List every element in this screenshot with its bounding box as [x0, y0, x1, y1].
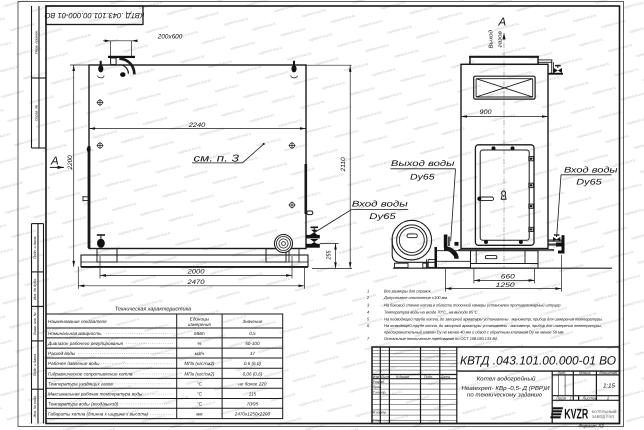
svg-text:газов: газов: [497, 31, 503, 48]
svg-text:0,6 (6,0): 0,6 (6,0): [244, 361, 262, 366]
svg-text:Остальные технические требован: Остальные технические требования по ОСТ …: [384, 336, 498, 341]
svg-text:Температура воды (вход/выход): Температура воды (вход/выход): [48, 401, 119, 406]
svg-text:2000: 2000: [186, 269, 205, 276]
svg-text:°С: °С: [197, 401, 203, 406]
svg-text:Dy65: Dy65: [410, 172, 435, 181]
svg-text:А: А: [50, 156, 59, 168]
svg-text:Вход воды: Вход воды: [352, 200, 408, 209]
svg-text:Все размеры для справок: Все размеры для справок: [384, 289, 432, 294]
svg-text:Техническая характеристика: Техническая характеристика: [115, 307, 191, 313]
svg-text:На отводящей трубе котла, до: На отводящей трубе котла, до запорной ар…: [384, 323, 602, 328]
svg-text:МПа (кгс/см2): МПа (кгс/см2): [184, 371, 214, 376]
svg-text:МВт: МВт: [194, 331, 205, 336]
svg-text:%: %: [197, 341, 201, 346]
svg-text:Вход воды: Вход воды: [564, 166, 618, 175]
svg-text:На боковой стенке котла в обла: На боковой стенке котла в области топочн…: [384, 303, 561, 308]
svg-text:Масса: Масса: [579, 371, 590, 375]
svg-text:Номинальная мощность: Номинальная мощность: [48, 331, 102, 336]
svg-text:1:15: 1:15: [603, 383, 615, 390]
svg-text:660: 660: [501, 273, 516, 280]
svg-text:Диапазон рабочего регулировани: Диапазон рабочего регулирования: [47, 341, 124, 346]
svg-text:Лист: Лист: [380, 375, 390, 379]
svg-text:Допустимое отклонение ±100 мм: Допустимое отклонение ±100 мм.: [383, 295, 448, 300]
svg-text:°С: °С: [197, 381, 203, 386]
svg-text:Лист: Лист: [555, 396, 567, 401]
svg-text:Разраб.: Разраб.: [373, 380, 385, 384]
svg-text:м3/ч: м3/ч: [195, 351, 205, 356]
svg-text:Подп. и дата: Подп. и дата: [33, 236, 37, 259]
svg-text:КВТД .043.101.00.000-01 ВО: КВТД .043.101.00.000-01 ВО: [460, 354, 616, 368]
svg-text:Дата: Дата: [440, 375, 450, 379]
svg-text:200х600: 200х600: [157, 33, 183, 40]
svg-text:50-100: 50-100: [245, 341, 260, 346]
svg-text:предохранительный клапан Dу н: предохранительный клапан Dу не менее 40 …: [384, 329, 564, 334]
svg-text:КВТД .043.101.00.000-01 ВО: КВТД .043.101.00.000-01 ВО: [45, 11, 145, 20]
svg-text:Справ. №: Справ. №: [34, 105, 38, 121]
svg-text:КОТЕЛЬНЫЙ: КОТЕЛЬНЫЙ: [592, 409, 617, 414]
svg-text:Габариты котла (длинна х ширин: Габариты котла (длинна х ширина х высота…: [48, 412, 149, 417]
svg-text:ЗАВОД РЭП: ЗАВОД РЭП: [592, 415, 615, 419]
svg-text:Н.контр.: Н.контр.: [373, 410, 387, 414]
svg-text:Подп. и дата: Подп. и дата: [33, 354, 37, 377]
svg-text:Пров.: Пров.: [373, 385, 382, 389]
svg-text:Формат А3: Формат А3: [578, 424, 604, 429]
svg-text:Выход воды: Выход воды: [391, 159, 455, 168]
svg-text:Изм: Изм: [373, 375, 380, 379]
svg-text:Выход: Выход: [488, 30, 495, 49]
svg-text:Утв.: Утв.: [373, 418, 381, 422]
svg-text:не более 220: не более 220: [238, 381, 266, 386]
svg-text:2470х1250х2200: 2470х1250х2200: [234, 412, 271, 417]
svg-text:Подп.: Подп.: [424, 375, 433, 379]
svg-text:0,5: 0,5: [249, 331, 256, 336]
svg-text:Перв. примен.: Перв. примен.: [34, 30, 38, 54]
svg-text:Инв. № подл.: Инв. № подл.: [33, 395, 37, 417]
svg-text:А: А: [498, 17, 507, 29]
svg-text:МПа (кгс/см2): МПа (кгс/см2): [184, 361, 214, 366]
svg-text:Расход воды: Расход воды: [48, 351, 76, 356]
svg-text:Максимальная рабочая температу: Максимальная рабочая температура воды: [48, 392, 143, 397]
svg-text:0,06 (0,6): 0,06 (0,6): [243, 371, 263, 376]
svg-text:На подводящей трубе котла, д: На подводящей трубе котла, до запорной а…: [384, 317, 603, 322]
svg-text:2110: 2110: [340, 157, 347, 173]
svg-text:Наименование показателя: Наименование показателя: [48, 319, 107, 324]
svg-text:мм: мм: [196, 412, 203, 417]
svg-text:°С: °С: [197, 392, 203, 397]
svg-text:KVZR: KVZR: [564, 406, 588, 422]
svg-text:2200: 2200: [67, 155, 74, 170]
svg-text:Температура уходящих газов: Температура уходящих газов: [48, 381, 113, 386]
svg-text:по техническому заданию: по техническому заданию: [467, 391, 543, 398]
svg-text:2240: 2240: [188, 122, 206, 129]
svg-text:2470: 2470: [186, 279, 205, 286]
svg-text:Масштаб: Масштаб: [599, 371, 618, 375]
svg-text:Лит.: Лит.: [557, 371, 567, 375]
svg-text:17: 17: [250, 351, 256, 356]
svg-text:70/95: 70/95: [247, 401, 259, 406]
svg-text:1: 1: [570, 396, 572, 401]
svg-text:Котел водогрейный: Котел водогрейный: [477, 375, 537, 382]
svg-text:Dy65: Dy65: [576, 177, 602, 186]
svg-text:115: 115: [249, 392, 257, 397]
svg-text:1: 1: [367, 289, 369, 294]
svg-text:900: 900: [480, 109, 492, 116]
svg-text:1250: 1250: [496, 282, 516, 289]
svg-text:Т.контр.: Т.контр.: [373, 390, 387, 394]
svg-text:Температура воды на входе 70°: Температура воды на входе 70°С , на выхо…: [384, 310, 480, 315]
svg-text:измерения: измерения: [188, 322, 212, 327]
svg-text:Dy65: Dy65: [369, 212, 396, 221]
svg-text:N докум.: N докум.: [396, 375, 410, 379]
svg-text:Heatexpert- КВр -0,5- Д (РВР)И: Heatexpert- КВр -0,5- Д (РВР)И: [462, 385, 551, 392]
svg-text:Инв. № дубл.: Инв. № дубл.: [33, 278, 37, 300]
svg-text:Значение: Значение: [242, 319, 263, 324]
svg-text:Листов: Листов: [582, 396, 598, 401]
svg-text:Рабочее давление воды: Рабочее давление воды: [48, 361, 100, 366]
svg-text:Взам. инв. №: Взам. инв. №: [33, 312, 37, 334]
svg-text:Гидравлическое сопротивление к: Гидравлическое сопротивление котла: [48, 371, 133, 376]
svg-text:255: 255: [326, 250, 333, 260]
